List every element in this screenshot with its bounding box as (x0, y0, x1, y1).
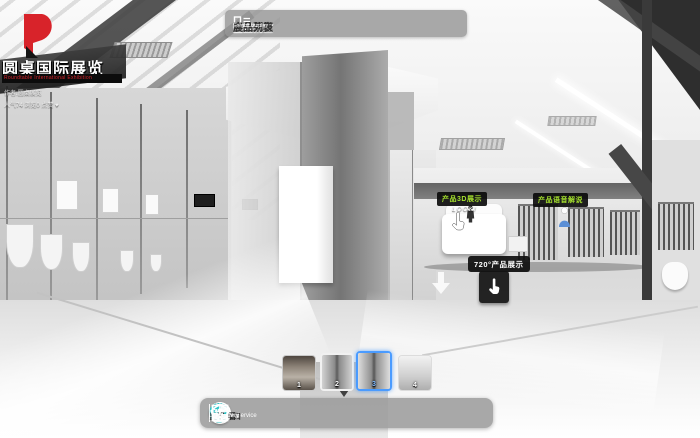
blocks-view-button[interactable] (209, 402, 231, 424)
hotspot-voice-guide-label[interactable]: 产品语音解说 (533, 193, 588, 207)
vr-showroom-app: 圆桌国际展览 Roundtable International Exhibiti… (0, 0, 700, 438)
scene-poster-panel (102, 188, 119, 213)
scene-thumbnail-2[interactable]: 2 (320, 353, 354, 391)
blocks-grid-icon (212, 405, 228, 421)
click-hand-icon[interactable] (450, 212, 466, 232)
scene-glass-mullion (50, 92, 52, 306)
scene-thumbnail-3-selected[interactable]: 3 (356, 351, 392, 391)
scene-glass-mullion (186, 110, 188, 288)
author-line: 作者:圆桌展览 (4, 88, 42, 97)
brand-name-en: Roundtable International Exhibition (2, 74, 122, 83)
thumbnail-number: 4 (399, 382, 431, 389)
top-navigation-bar: 企业简介 Company profile 企业视频 Enterprise vid… (225, 10, 467, 37)
scene-air-vent (439, 138, 505, 150)
arrow-head (432, 283, 450, 294)
menu-item-sublabel: Exhibit display (233, 24, 268, 30)
bottom-toolbar: 客服 Customer Service VR带看 VR show 播 直播入口 (200, 398, 493, 428)
scene-poster-panel (145, 194, 159, 215)
scene-thumbnail-1[interactable]: 1 (282, 355, 316, 391)
stats-line: 人气74 浏览0 点赞 ♥ (4, 100, 59, 109)
scene-radiator-panel (568, 207, 604, 257)
scene-shelf-line (0, 218, 230, 219)
scene-poster-panel (56, 180, 78, 210)
scene-thumbnail-bar: 1 2 3 4 (278, 348, 440, 396)
scene-radiator-panel (610, 210, 640, 255)
thumbnail-number: 1 (283, 382, 315, 389)
scene-floor-shadow (424, 262, 650, 272)
click-hand-icon (487, 278, 501, 296)
scene-mid-wall-line (412, 150, 413, 300)
scene-product-fixture (662, 262, 688, 290)
hotspot-720-label[interactable]: 720°产品展示 (468, 256, 530, 272)
scene-right-frame (642, 0, 652, 322)
scene-radiator-panel (658, 202, 694, 250)
thumbnail-number: 3 (358, 381, 390, 388)
floor-navigation-arrow-icon[interactable] (432, 272, 450, 296)
thumbnail-number: 2 (322, 381, 352, 388)
roundtable-logo-icon (18, 14, 60, 58)
scene-air-vent (547, 116, 596, 126)
scene-side-table (508, 236, 528, 252)
voice-presenter-icon[interactable] (558, 207, 571, 228)
scene-thumbnail-4[interactable]: 4 (398, 355, 432, 391)
brand-block: 圆桌国际展览 Roundtable International Exhibiti… (0, 12, 132, 122)
scene-display-screen (194, 194, 215, 207)
scene-glass-mullion (140, 104, 142, 294)
scene-glass-mullion (96, 98, 98, 300)
hotspot-product-3d-label[interactable]: 产品3D展示 (437, 192, 487, 206)
hotspot-720-click-target[interactable] (479, 271, 509, 303)
